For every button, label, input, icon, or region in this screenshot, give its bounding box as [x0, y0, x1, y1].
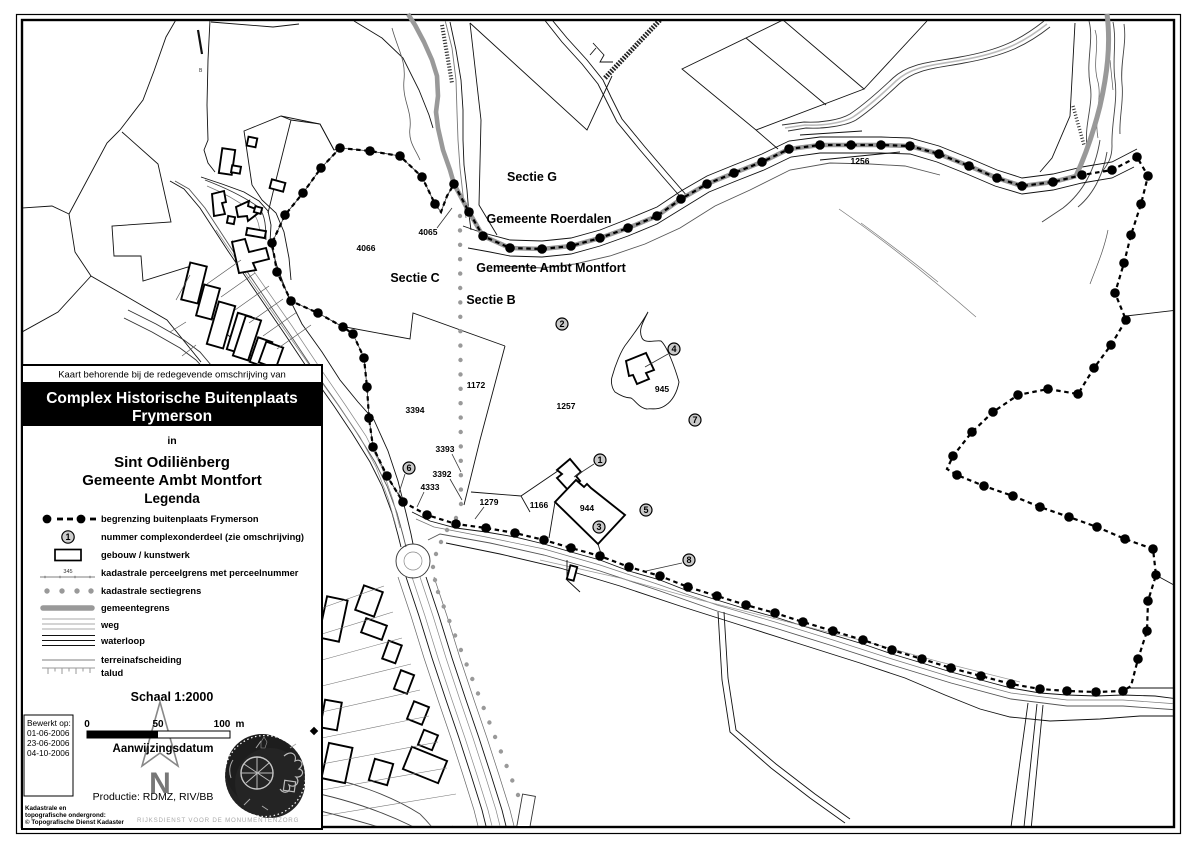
svg-text:3392: 3392 — [433, 469, 452, 479]
svg-text:1257: 1257 — [557, 401, 576, 411]
svg-text:01-06-2006: 01-06-2006 — [27, 728, 70, 738]
svg-text:1256: 1256 — [851, 156, 870, 166]
svg-text:1172: 1172 — [467, 380, 486, 390]
svg-text:RIJKSDIENST VOOR DE MONUMENTEN: RIJKSDIENST VOOR DE MONUMENTENZORG — [137, 817, 299, 824]
svg-text:945: 945 — [655, 384, 669, 394]
svg-text:waterloop: waterloop — [100, 636, 145, 646]
svg-text:Aanwijzingsdatum: Aanwijzingsdatum — [113, 743, 214, 755]
svg-text:topografische ondergrond:: topografische ondergrond: — [25, 812, 106, 819]
svg-text:3394: 3394 — [406, 405, 425, 415]
svg-text:2: 2 — [559, 319, 564, 329]
svg-text:Kaart behorende bij de redegev: Kaart behorende bij de redegevende omsch… — [58, 370, 286, 381]
svg-text:gemeentegrens: gemeentegrens — [101, 603, 170, 613]
svg-text:Frymerson: Frymerson — [132, 408, 212, 425]
svg-text:© Topografische Dienst Kadaste: © Topografische Dienst Kadaster — [25, 818, 125, 826]
svg-text:Sectie B: Sectie B — [466, 293, 515, 307]
svg-text:6: 6 — [406, 463, 411, 473]
svg-text:Gemeente Roerdalen: Gemeente Roerdalen — [486, 212, 611, 226]
svg-text:7: 7 — [692, 415, 697, 425]
svg-text:3: 3 — [596, 522, 601, 532]
svg-text:50: 50 — [152, 719, 164, 730]
svg-text:Complex Historische Buitenplaa: Complex Historische Buitenplaats — [46, 390, 298, 407]
svg-text:5: 5 — [643, 505, 648, 515]
svg-text:m: m — [236, 719, 245, 730]
svg-text:1279: 1279 — [480, 497, 499, 507]
svg-text:8: 8 — [686, 555, 691, 565]
svg-text:Kadastrale en: Kadastrale en — [25, 805, 66, 812]
svg-text:1: 1 — [65, 532, 70, 542]
svg-text:345: 345 — [63, 569, 72, 575]
svg-text:4066: 4066 — [357, 243, 376, 253]
svg-text:talud: talud — [101, 668, 124, 678]
svg-text:100: 100 — [214, 719, 231, 730]
svg-text:terreinafscheiding: terreinafscheiding — [101, 655, 182, 665]
svg-text:kadastrale sectiegrens: kadastrale sectiegrens — [101, 586, 201, 596]
svg-text:1166: 1166 — [530, 500, 549, 510]
svg-text:begrenzing buitenplaats Frymer: begrenzing buitenplaats Frymerson — [101, 514, 259, 524]
svg-text:3393: 3393 — [436, 444, 455, 454]
svg-text:04-10-2006: 04-10-2006 — [27, 748, 70, 758]
svg-text:944: 944 — [580, 503, 594, 513]
svg-text:nummer complexonderdeel (zie o: nummer complexonderdeel (zie omschrijvin… — [101, 532, 304, 542]
svg-text:Sectie C: Sectie C — [390, 271, 439, 285]
svg-text:4065: 4065 — [419, 227, 438, 237]
svg-text:kadastrale perceelgrens met pe: kadastrale perceelgrens met perceelnumme… — [101, 568, 299, 578]
svg-text:gebouw / kunstwerk: gebouw / kunstwerk — [101, 550, 191, 560]
svg-text:Legenda: Legenda — [144, 491, 200, 506]
svg-text:1: 1 — [597, 455, 602, 465]
svg-text:Productie: RDMZ, RIV/BB: Productie: RDMZ, RIV/BB — [93, 791, 214, 803]
svg-text:0: 0 — [84, 719, 90, 730]
svg-text:Bewerkt op:: Bewerkt op: — [27, 718, 71, 728]
svg-text:Sint Odiliënberg: Sint Odiliënberg — [114, 454, 230, 471]
svg-text:Gemeente Ambt Montfort: Gemeente Ambt Montfort — [476, 261, 626, 275]
svg-text:in: in — [167, 435, 176, 447]
svg-text:4333: 4333 — [421, 482, 440, 492]
svg-text:23-06-2006: 23-06-2006 — [27, 738, 70, 748]
svg-text:Sectie G: Sectie G — [507, 170, 557, 184]
svg-text:4: 4 — [671, 344, 676, 354]
svg-text:Gemeente Ambt Montfort: Gemeente Ambt Montfort — [82, 472, 261, 489]
svg-text:weg: weg — [100, 620, 119, 630]
svg-text:Schaal 1:2000: Schaal 1:2000 — [131, 690, 214, 704]
